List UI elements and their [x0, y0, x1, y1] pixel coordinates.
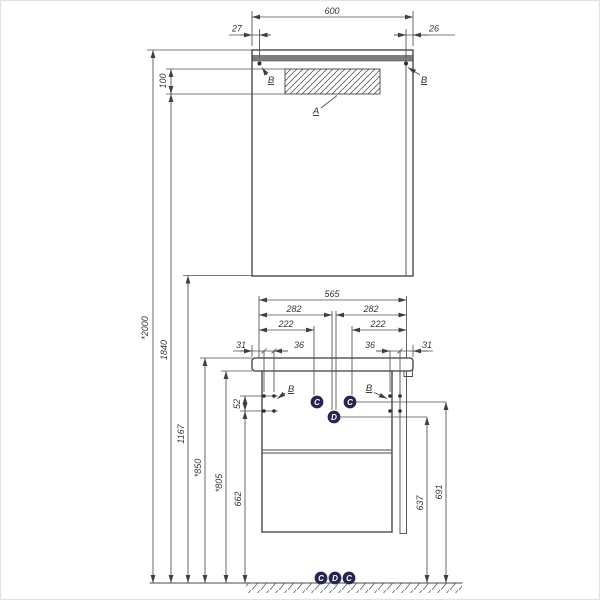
- dim-27: 27: [231, 24, 243, 34]
- label-b-mirror-left: B: [268, 75, 275, 86]
- screw-point: [388, 394, 392, 398]
- connection-badges: C C D C D C: [311, 396, 357, 585]
- dim-222-right: 222: [369, 319, 385, 329]
- screw-point: [262, 394, 266, 398]
- dim-31-left: 31: [236, 340, 246, 350]
- screw-point: [398, 394, 402, 398]
- dim-36-left: 36: [294, 340, 304, 350]
- dim-2000: *2000: [140, 316, 150, 340]
- dim-1167: 1167: [176, 423, 186, 443]
- dim-565: 565: [324, 289, 340, 299]
- dim-282-left: 282: [285, 304, 301, 314]
- height-dimensions: *2000 100 1840 1167 *850 *805 52 662: [140, 50, 285, 583]
- dim-26: 26: [428, 24, 439, 34]
- dim-600: 600: [324, 6, 339, 16]
- leader-a: [321, 96, 337, 109]
- lamp-hatch-area: [285, 69, 380, 94]
- label-b-vanity-left: B: [288, 384, 295, 395]
- screw-point: [272, 409, 276, 413]
- washbasin-countertop: [252, 358, 413, 371]
- dim-222-left: 222: [277, 319, 293, 329]
- dim-637: 637: [415, 495, 425, 511]
- badge-d-floor-letter: D: [332, 574, 338, 583]
- screw-point: [398, 409, 402, 413]
- dim-100: 100: [158, 73, 168, 88]
- drawing-canvas: B B A 600 27 26 *2000 100 1840 1167: [0, 0, 600, 600]
- badge-c-right-letter: C: [347, 398, 353, 407]
- dim-805: *805: [214, 473, 224, 493]
- screw-point: [272, 394, 276, 398]
- dim-282-right: 282: [362, 304, 378, 314]
- dim-850: *850: [193, 459, 203, 478]
- installation-drawing: B B A 600 27 26 *2000 100 1840 1167: [0, 0, 600, 600]
- mount-point-b-left: [258, 62, 262, 66]
- dim-31-right: 31: [422, 340, 432, 350]
- vanity-dimensions: 565 282 282 222 222 31 36 36 31 691 637: [233, 289, 446, 583]
- dim-691: 691: [434, 484, 444, 499]
- screw-point: [388, 409, 392, 413]
- dim-36-right: 36: [365, 340, 375, 350]
- dim-1840: 1840: [159, 340, 169, 360]
- vanity-unit: B B: [252, 351, 413, 534]
- floor: [150, 583, 462, 593]
- mirror-cabinet: B B A: [252, 50, 428, 276]
- leader-b-vanity-left: [278, 393, 286, 399]
- lamp-cornice-bar: [253, 56, 413, 62]
- mount-point-b-right: [404, 62, 408, 66]
- label-a-lamp: A: [312, 106, 319, 117]
- badge-c-floor-right-letter: C: [346, 574, 352, 583]
- countertop-right-step: [404, 371, 413, 377]
- screw-point: [262, 409, 266, 413]
- dim-52: 52: [232, 399, 242, 409]
- dim-662: 662: [233, 491, 243, 506]
- leader-b-right: [408, 68, 420, 76]
- label-b-vanity-right: B: [366, 383, 373, 394]
- badge-c-floor-left-letter: C: [318, 574, 324, 583]
- label-b-mirror-right: B: [421, 75, 428, 86]
- badge-d-center-letter: D: [331, 413, 337, 422]
- leader-b-vanity-right: [374, 393, 387, 399]
- floor-hatch: [246, 584, 462, 594]
- badge-c-left-letter: C: [314, 398, 320, 407]
